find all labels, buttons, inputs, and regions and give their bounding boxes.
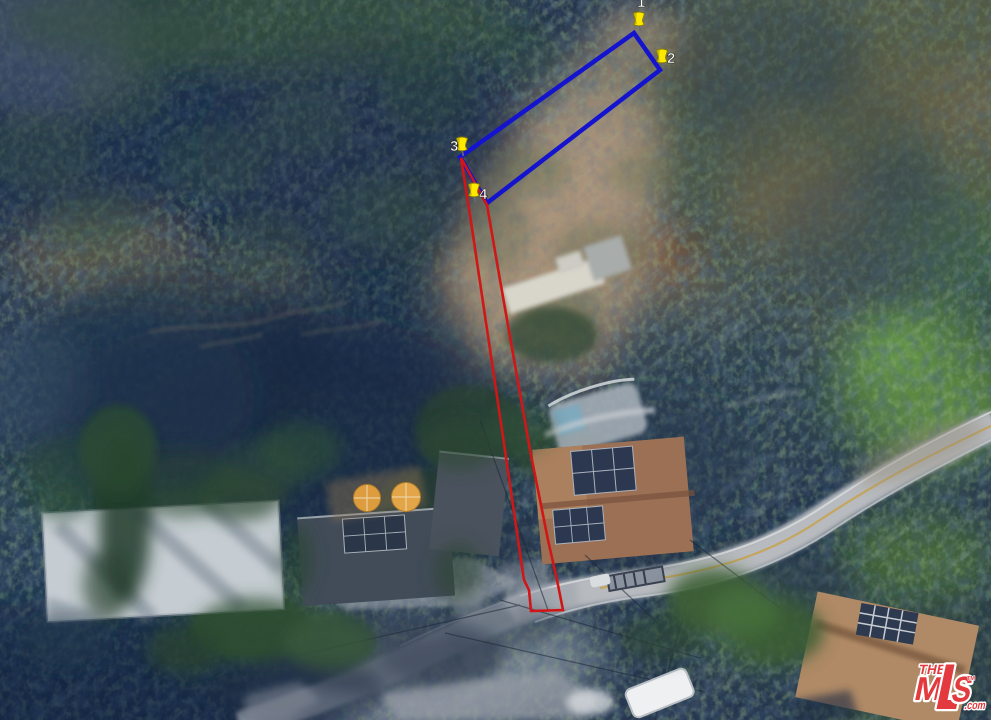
svg-text:2: 2 bbox=[667, 50, 675, 67]
svg-text:1: 1 bbox=[637, 0, 645, 11]
svg-text:.com: .com bbox=[963, 700, 986, 712]
svg-text:TM: TM bbox=[967, 676, 975, 682]
svg-text:3: 3 bbox=[450, 138, 458, 155]
svg-text:4: 4 bbox=[479, 186, 488, 203]
